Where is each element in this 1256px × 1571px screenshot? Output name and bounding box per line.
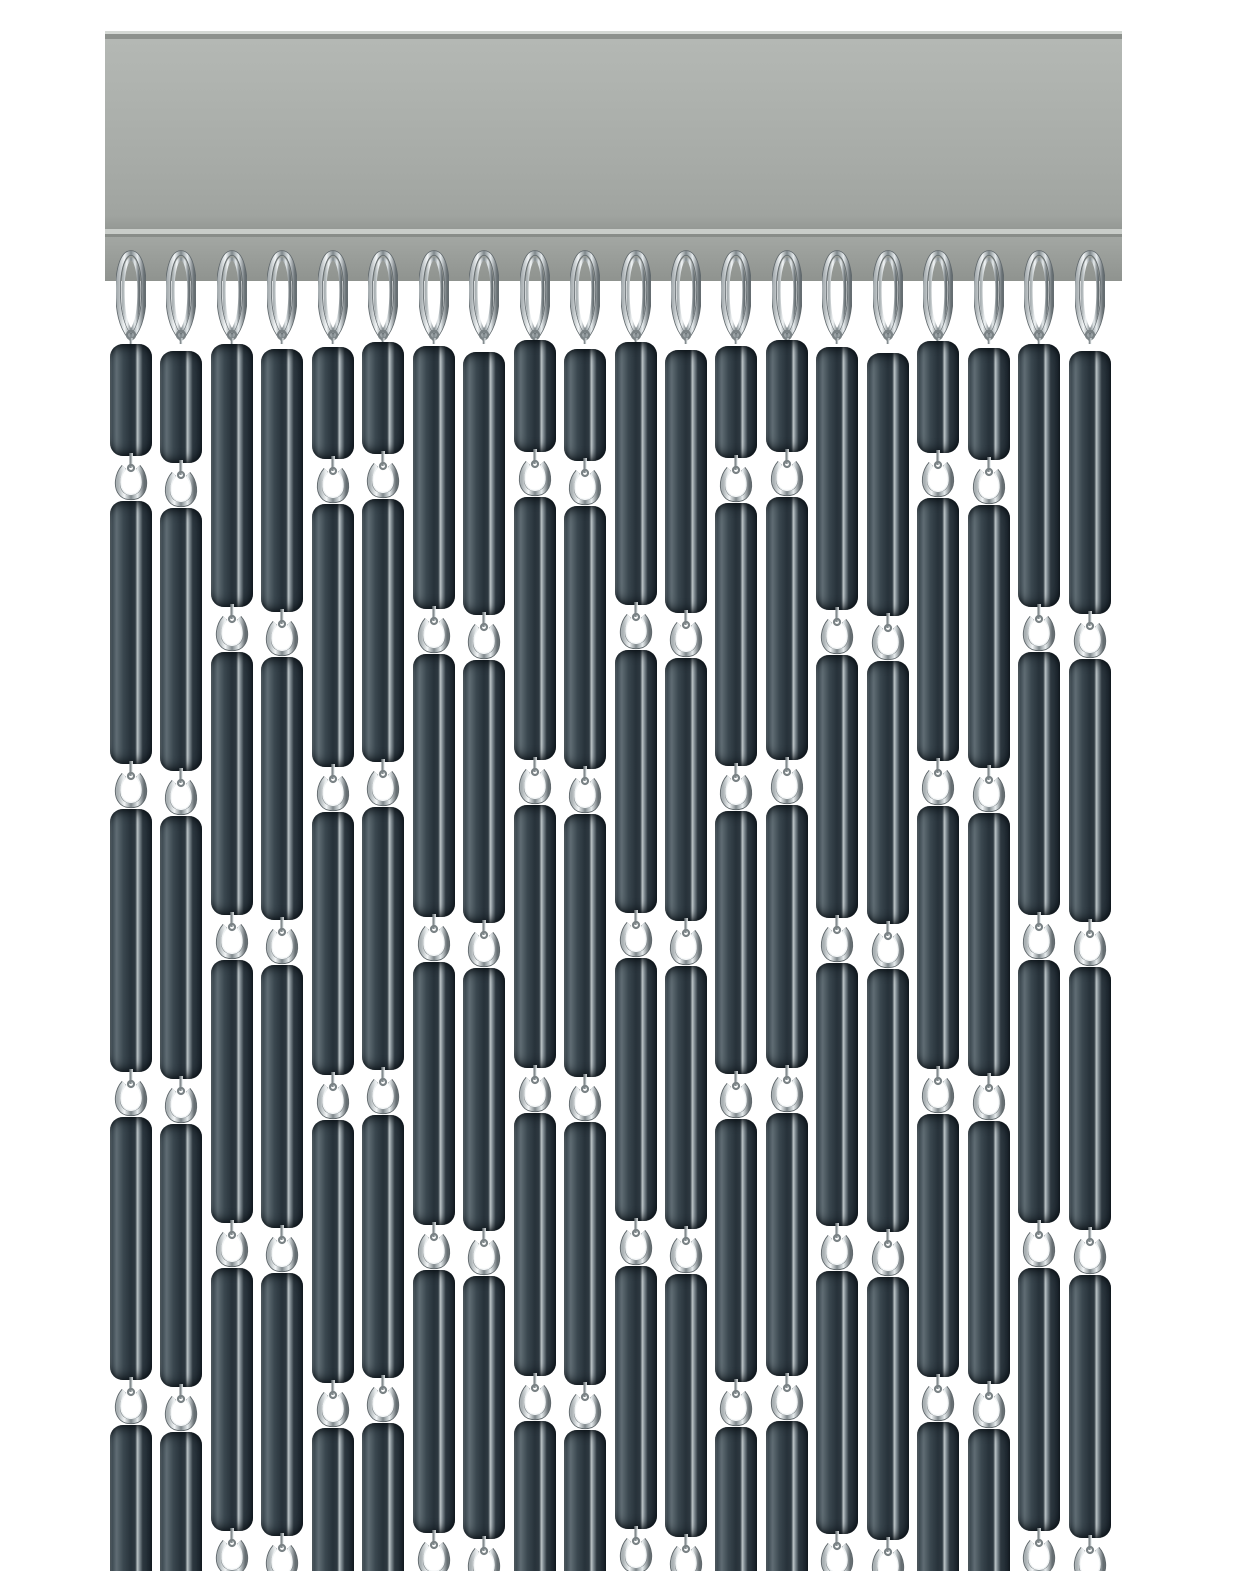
bead-curtain [0, 0, 1256, 1571]
bead-link [972, 457, 1006, 508]
strand-hook [822, 248, 852, 344]
bead [715, 1119, 757, 1382]
strand-hook [318, 248, 348, 344]
bead-link [265, 1533, 299, 1571]
bead [615, 342, 657, 605]
bead [615, 958, 657, 1221]
bead-link [316, 764, 350, 815]
strand-hook [1075, 248, 1105, 344]
bead-link [518, 757, 552, 808]
bead [514, 1421, 556, 1571]
bead-link [568, 1382, 602, 1433]
bead [1069, 1275, 1111, 1538]
bead-link [215, 604, 249, 655]
bead [665, 966, 707, 1229]
bead-link [518, 449, 552, 500]
bead-strand [211, 0, 253, 1571]
bead [665, 350, 707, 613]
bead-strand [715, 0, 757, 1571]
bead-link [1022, 1220, 1056, 1271]
bead [362, 1115, 404, 1378]
bead-link [719, 1071, 753, 1122]
bead [261, 965, 303, 1228]
bead-strand [413, 0, 455, 1571]
bead [211, 1268, 253, 1531]
bead [564, 814, 606, 1077]
bead-strand [312, 0, 354, 1571]
bead [312, 1428, 354, 1571]
bead-strand [615, 0, 657, 1571]
bead [816, 347, 858, 610]
bead-link [164, 768, 198, 819]
bead [867, 661, 909, 924]
bead-link [1073, 611, 1107, 662]
bead [1069, 967, 1111, 1230]
bead-link [921, 758, 955, 809]
bead-link [417, 914, 451, 965]
bead [160, 1432, 202, 1571]
bead-link [770, 449, 804, 500]
bead-link [719, 455, 753, 506]
bead-link [921, 1066, 955, 1117]
bead-link [164, 460, 198, 511]
strand-hook [671, 248, 701, 344]
bead [160, 816, 202, 1079]
bead [261, 657, 303, 920]
bead-link [467, 1228, 501, 1279]
bead [917, 341, 959, 453]
bead-link [518, 1065, 552, 1116]
bead [715, 811, 757, 1074]
bead-link [619, 1218, 653, 1269]
bead [665, 658, 707, 921]
bead-link [366, 1067, 400, 1118]
bead [665, 1274, 707, 1537]
bead [413, 1270, 455, 1533]
bead-link [871, 1537, 905, 1571]
strand-hook [772, 248, 802, 344]
bead-link [820, 607, 854, 658]
bead [1069, 659, 1111, 922]
bead-link [619, 1526, 653, 1571]
bead [110, 809, 152, 1072]
bead-link [164, 1076, 198, 1127]
bead-link [518, 1373, 552, 1424]
bead [312, 347, 354, 459]
bead-strand [665, 0, 707, 1571]
bead-strand [867, 0, 909, 1571]
bead [110, 344, 152, 456]
bead [110, 1117, 152, 1380]
strand-hook [217, 248, 247, 344]
bead-strand [261, 0, 303, 1571]
bead-link [619, 602, 653, 653]
bead [715, 503, 757, 766]
bead [917, 498, 959, 761]
bead-link [568, 1074, 602, 1125]
bead-link [820, 1531, 854, 1571]
bead [261, 349, 303, 612]
bead-link [1073, 1227, 1107, 1278]
bead [816, 1271, 858, 1534]
strand-hook [419, 248, 449, 344]
bead-strand [917, 0, 959, 1571]
bead-link [114, 761, 148, 812]
bead-strand [816, 0, 858, 1571]
bead [211, 960, 253, 1223]
bead-link [619, 910, 653, 961]
bead [615, 650, 657, 913]
strand-hook [520, 248, 550, 344]
bead [413, 962, 455, 1225]
bead [715, 1427, 757, 1571]
bead [261, 1273, 303, 1536]
bead-link [467, 1536, 501, 1571]
bead [564, 1122, 606, 1385]
bead [413, 346, 455, 609]
bead [766, 340, 808, 452]
bead [362, 499, 404, 762]
bead-link [316, 456, 350, 507]
bead [968, 813, 1010, 1076]
bead-link [1022, 1528, 1056, 1571]
strand-hook [469, 248, 499, 344]
bead [514, 340, 556, 452]
bead-strand [968, 0, 1010, 1571]
bead-link [215, 912, 249, 963]
bead [312, 812, 354, 1075]
bead-link [1022, 912, 1056, 963]
bead [1018, 960, 1060, 1223]
bead [514, 497, 556, 760]
bead [463, 352, 505, 615]
bead [766, 1421, 808, 1571]
bead-link [114, 453, 148, 504]
bead-link [164, 1384, 198, 1435]
bead-link [568, 766, 602, 817]
bead [1018, 1268, 1060, 1531]
bead-link [770, 757, 804, 808]
bead-strand [160, 0, 202, 1571]
bead [917, 1114, 959, 1377]
bead-link [1073, 919, 1107, 970]
bead-link [972, 765, 1006, 816]
strand-hook [923, 248, 953, 344]
bead-link [265, 917, 299, 968]
bead-link [316, 1072, 350, 1123]
bead [968, 1429, 1010, 1571]
bead [968, 348, 1010, 460]
bead [514, 805, 556, 1068]
bead-link [417, 606, 451, 657]
bead [766, 805, 808, 1068]
bead [968, 505, 1010, 768]
bead-link [719, 763, 753, 814]
strand-hook [721, 248, 751, 344]
bead-strand [514, 0, 556, 1571]
bead [160, 1124, 202, 1387]
bead-link [770, 1373, 804, 1424]
bead [917, 806, 959, 1069]
bead [362, 1423, 404, 1571]
bead [867, 1277, 909, 1540]
bead-link [972, 1381, 1006, 1432]
bead [968, 1121, 1010, 1384]
bead-link [265, 609, 299, 660]
bead [867, 969, 909, 1232]
product-photo-stage [0, 0, 1256, 1571]
bead-link [114, 1069, 148, 1120]
strand-hook [621, 248, 651, 344]
bead [615, 1266, 657, 1529]
bead-link [366, 759, 400, 810]
bead-strand [766, 0, 808, 1571]
strand-hook [368, 248, 398, 344]
bead [816, 655, 858, 918]
strand-hook [570, 248, 600, 344]
bead [564, 1430, 606, 1571]
bead [564, 506, 606, 769]
bead-link [669, 1534, 703, 1571]
bead [715, 346, 757, 458]
bead-strand [1069, 0, 1111, 1571]
bead-link [417, 1530, 451, 1571]
bead [463, 1276, 505, 1539]
bead-link [921, 450, 955, 501]
strand-hook [166, 248, 196, 344]
bead-strand [1018, 0, 1060, 1571]
bead-link [921, 1374, 955, 1425]
strand-hook [116, 248, 146, 344]
bead-link [467, 612, 501, 663]
bead [211, 344, 253, 607]
bead-link [366, 1375, 400, 1426]
bead [362, 342, 404, 454]
bead-link [568, 458, 602, 509]
bead [766, 1113, 808, 1376]
bead [362, 807, 404, 1070]
bead-strand [110, 0, 152, 1571]
bead [211, 652, 253, 915]
bead [413, 654, 455, 917]
bead-link [871, 921, 905, 972]
bead-link [467, 920, 501, 971]
bead [110, 1425, 152, 1571]
bead [1069, 351, 1111, 614]
bead-link [820, 915, 854, 966]
bead-link [871, 613, 905, 664]
bead-link [417, 1222, 451, 1273]
bead-link [669, 1226, 703, 1277]
bead-strand [564, 0, 606, 1571]
bead-link [366, 451, 400, 502]
bead-link [215, 1528, 249, 1571]
strand-hook [974, 248, 1004, 344]
bead [110, 501, 152, 764]
bead [463, 660, 505, 923]
bead [867, 353, 909, 616]
bead [160, 508, 202, 771]
bead-link [972, 1073, 1006, 1124]
strand-hook [267, 248, 297, 344]
bead-link [669, 918, 703, 969]
bead-strand [463, 0, 505, 1571]
bead-link [871, 1229, 905, 1280]
bead-link [114, 1377, 148, 1428]
bead [1018, 652, 1060, 915]
bead-link [820, 1223, 854, 1274]
bead [160, 351, 202, 463]
bead-link [265, 1225, 299, 1276]
bead [564, 349, 606, 461]
bead [312, 504, 354, 767]
strand-hook [873, 248, 903, 344]
bead [463, 968, 505, 1231]
bead-link [215, 1220, 249, 1271]
bead [514, 1113, 556, 1376]
bead [1018, 344, 1060, 607]
bead-link [669, 610, 703, 661]
bead-link [770, 1065, 804, 1116]
strand-hook [1024, 248, 1054, 344]
bead-strand [362, 0, 404, 1571]
bead [816, 963, 858, 1226]
bead [766, 497, 808, 760]
bead-link [719, 1379, 753, 1430]
bead-link [1022, 604, 1056, 655]
bead [917, 1422, 959, 1571]
bead-link [1073, 1535, 1107, 1571]
bead-link [316, 1380, 350, 1431]
bead [312, 1120, 354, 1383]
